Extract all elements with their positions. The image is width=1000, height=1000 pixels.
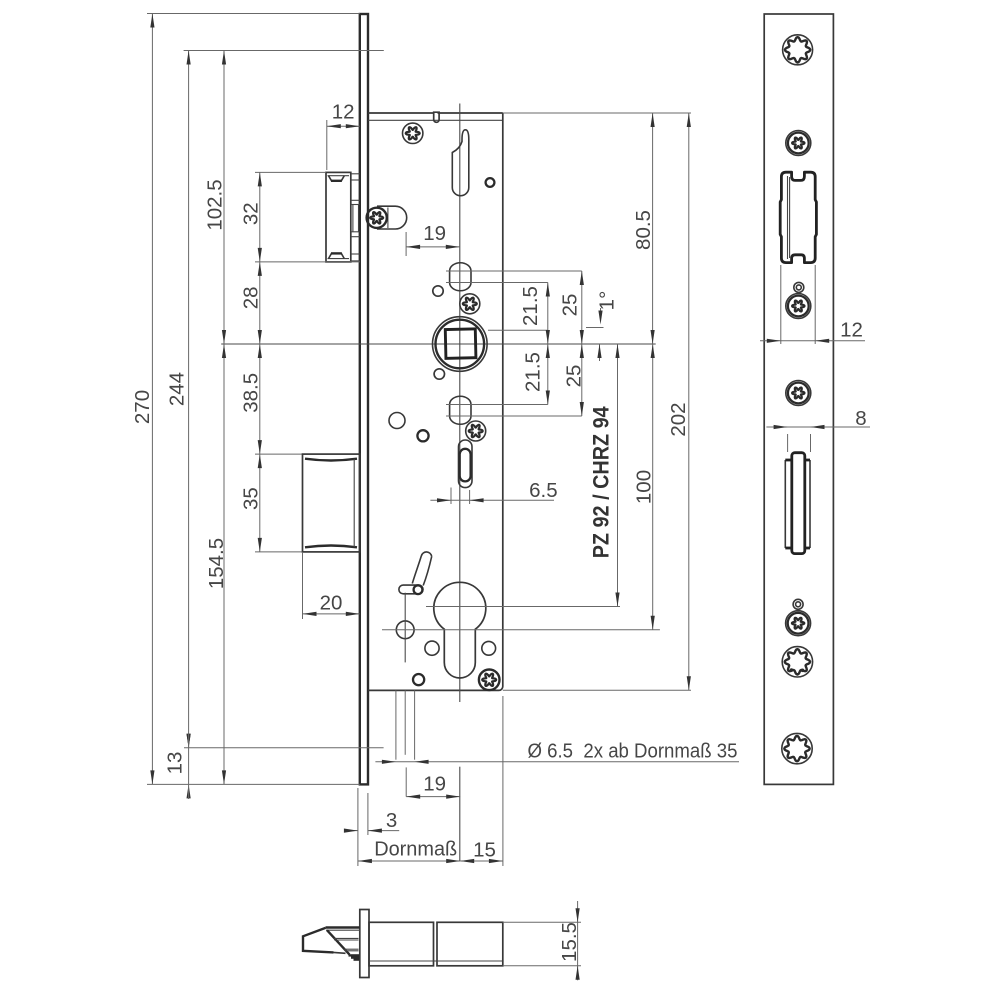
svg-text:35: 35: [239, 487, 262, 510]
svg-text:19: 19: [423, 773, 446, 796]
svg-text:270: 270: [131, 390, 154, 424]
svg-text:6.5: 6.5: [529, 479, 558, 502]
svg-text:28: 28: [239, 286, 262, 309]
svg-text:13: 13: [164, 752, 187, 775]
svg-text:15: 15: [473, 839, 496, 862]
svg-text:20: 20: [320, 592, 343, 615]
svg-text:15.5: 15.5: [558, 922, 581, 962]
svg-text:12: 12: [840, 318, 863, 341]
svg-text:244: 244: [166, 372, 189, 406]
svg-text:Ø 6.5 2x ab Dornmaß 35: Ø 6.5 2x ab Dornmaß 35: [528, 740, 738, 763]
svg-text:102.5: 102.5: [203, 179, 226, 230]
svg-text:21.5: 21.5: [519, 286, 542, 326]
svg-text:154.5: 154.5: [205, 538, 228, 589]
svg-text:100: 100: [633, 470, 656, 504]
svg-text:80.5: 80.5: [632, 210, 655, 250]
svg-text:3: 3: [386, 809, 397, 832]
svg-text:202: 202: [667, 402, 690, 436]
svg-text:12: 12: [332, 100, 355, 123]
svg-text:32: 32: [239, 202, 262, 225]
svg-text:21.5: 21.5: [522, 352, 545, 392]
svg-text:25: 25: [562, 365, 585, 388]
svg-text:1°: 1°: [596, 291, 619, 311]
svg-text:19: 19: [423, 222, 446, 245]
svg-text:25: 25: [559, 294, 582, 317]
svg-text:38.5: 38.5: [239, 373, 262, 413]
svg-text:PZ 92 / CHRZ 94: PZ 92 / CHRZ 94: [589, 406, 614, 559]
svg-text:8: 8: [855, 407, 866, 430]
svg-text:Dornmaß: Dornmaß: [374, 838, 457, 861]
